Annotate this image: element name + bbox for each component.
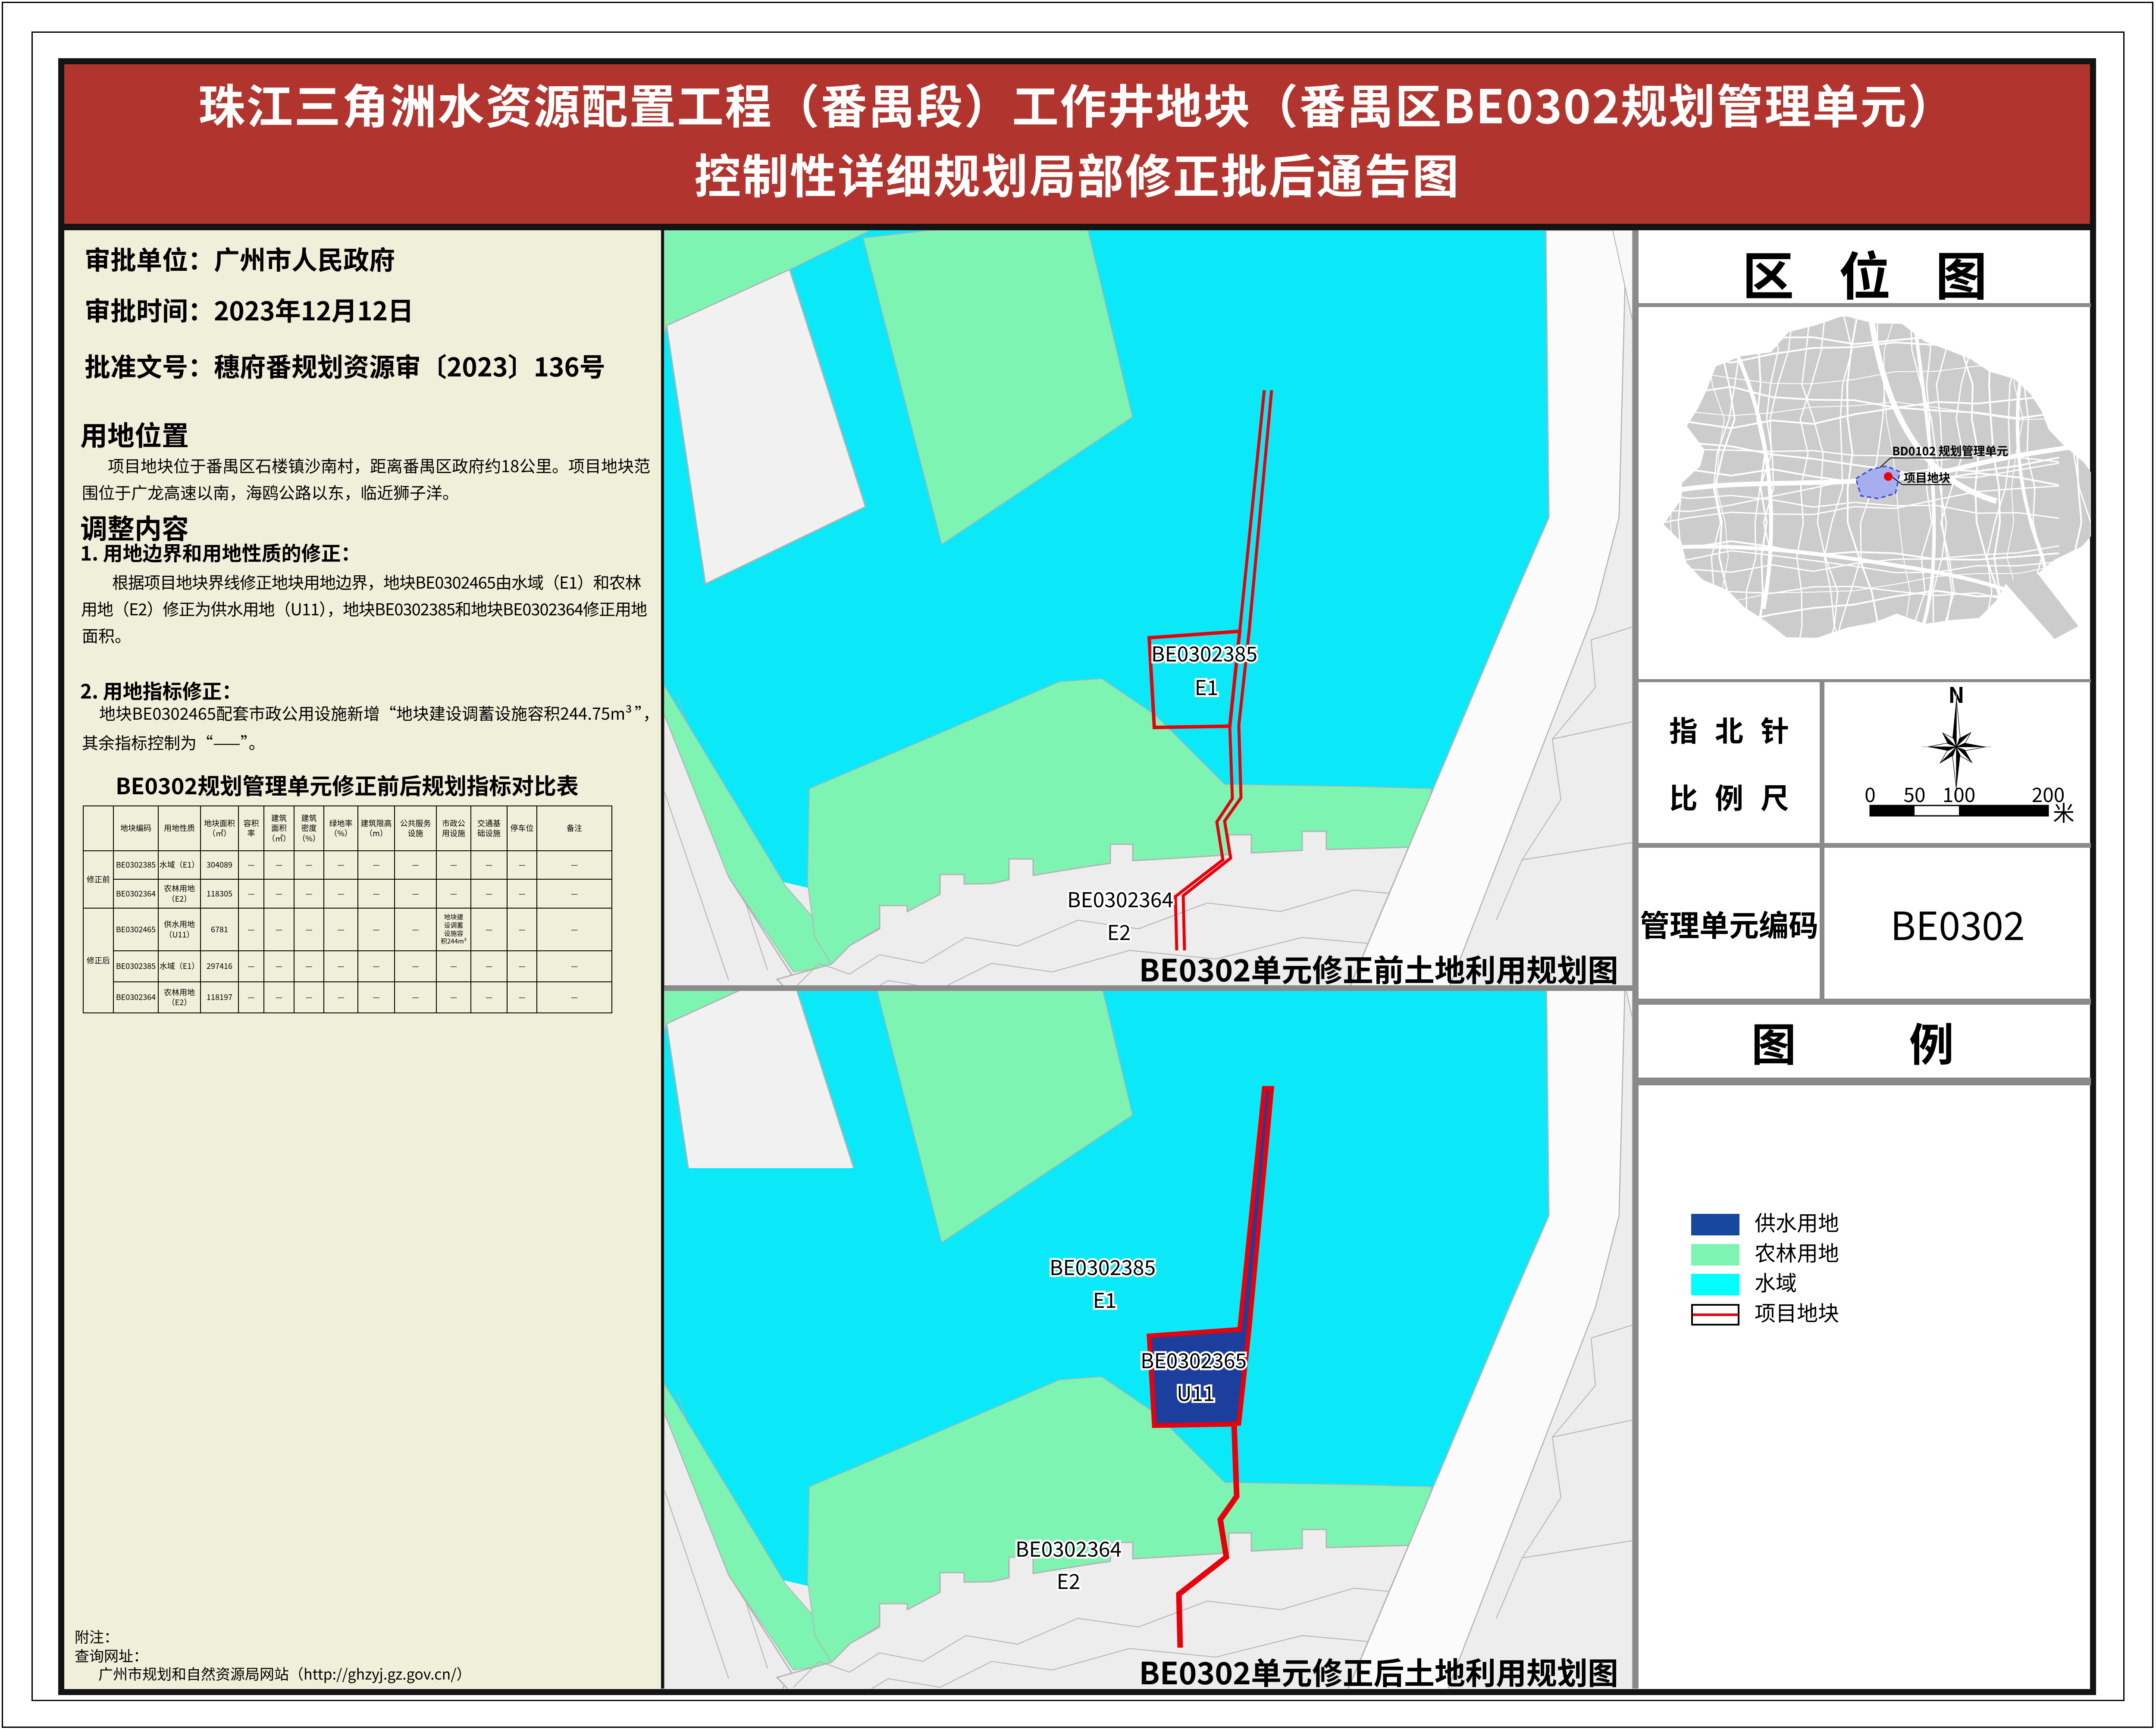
svg-text:BE0302单元修正后土地利用规划图: BE0302单元修正后土地利用规划图 [1139,1649,1618,1689]
svg-text:E1: E1 [1195,671,1219,701]
svg-text:U11: U11 [1177,1377,1215,1407]
svg-text:BE0302364: BE0302364 [1067,883,1173,913]
svg-text:E1: E1 [1093,1284,1117,1314]
svg-text:100: 100 [1943,780,1976,808]
svg-text:50: 50 [1903,780,1925,808]
svg-text:米: 米 [2053,796,2075,827]
svg-text:BE0302364: BE0302364 [1015,1533,1122,1563]
svg-text:E2: E2 [1057,1565,1081,1595]
svg-text:BE0302365: BE0302365 [1141,1344,1247,1374]
svg-text:BE0302385: BE0302385 [1151,637,1257,668]
svg-text:BE0302单元修正前土地利用规划图: BE0302单元修正前土地利用规划图 [1139,946,1618,985]
svg-text:BD0102 规划管理单元: BD0102 规划管理单元 [1892,442,2009,459]
svg-text:E2: E2 [1107,916,1131,946]
svg-text:项目地块: 项目地块 [1904,469,1950,486]
svg-text:BE0302385: BE0302385 [1050,1251,1156,1281]
svg-text:0: 0 [1865,780,1876,808]
